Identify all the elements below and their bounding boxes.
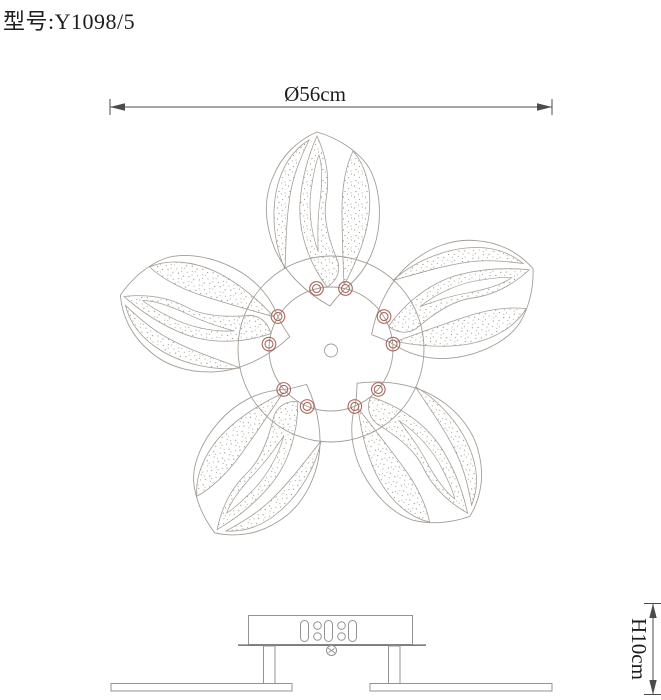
drawing-sheet: 型号:Y1098/5	[0, 0, 661, 700]
model-number-label: 型号:Y1098/5	[3, 4, 135, 36]
canopy-box	[249, 616, 413, 645]
arrow-up-icon	[649, 604, 656, 619]
technical-drawing-svg: Ø56cm	[0, 0, 661, 700]
arrow-left-icon	[110, 103, 125, 111]
petal-right	[352, 220, 552, 381]
height-value: H10cm	[627, 618, 651, 680]
left-leg	[264, 646, 276, 684]
arrow-down-icon	[649, 680, 656, 695]
left-petal-profile	[111, 684, 292, 692]
height-dimension: H10cm	[627, 604, 661, 695]
petal-bottom-right	[317, 346, 511, 553]
petal-bottom-left	[164, 355, 358, 562]
diameter-dimension: Ø56cm	[110, 82, 552, 115]
center-hole-circle	[325, 344, 338, 357]
center-screw	[327, 646, 337, 656]
right-petal-profile	[370, 684, 552, 692]
petal-top	[266, 132, 379, 306]
flower-top-view	[105, 132, 553, 563]
mount-side-view	[111, 616, 552, 692]
petal-left	[105, 236, 305, 397]
arrow-right-icon	[537, 103, 552, 111]
mount-plate-circle	[269, 287, 393, 411]
right-leg	[389, 646, 401, 684]
diameter-value: Ø56cm	[284, 82, 346, 106]
